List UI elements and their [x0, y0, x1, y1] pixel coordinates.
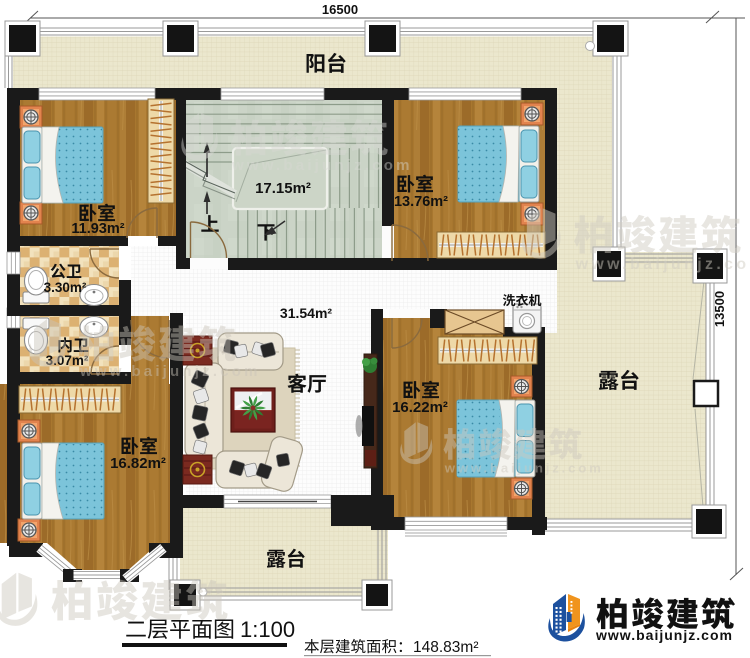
- svg-text:16500: 16500: [322, 2, 358, 17]
- svg-text:148.83m²: 148.83m²: [413, 639, 478, 656]
- svg-text:www.baijunjz.com: www.baijunjz.com: [79, 363, 261, 380]
- svg-text:3.30m²: 3.30m²: [44, 280, 87, 295]
- svg-text:31.54m²: 31.54m²: [280, 305, 332, 321]
- svg-text:16.22m²: 16.22m²: [392, 399, 448, 416]
- svg-text:www.baijunjz.com: www.baijunjz.com: [231, 157, 413, 174]
- svg-text:11.93m²: 11.93m²: [71, 221, 124, 237]
- svg-text:13.76m²: 13.76m²: [394, 194, 448, 210]
- svg-text:www.baijunjz.com: www.baijunjz.com: [444, 460, 604, 475]
- svg-text:17.15m²: 17.15m²: [255, 180, 311, 197]
- svg-text:www.baijunjz.com: www.baijunjz.com: [595, 627, 733, 643]
- svg-text:1:100: 1:100: [240, 617, 295, 642]
- svg-text:16.82m²: 16.82m²: [110, 455, 166, 472]
- svg-text:www.baijunjz.com: www.baijunjz.com: [575, 256, 750, 273]
